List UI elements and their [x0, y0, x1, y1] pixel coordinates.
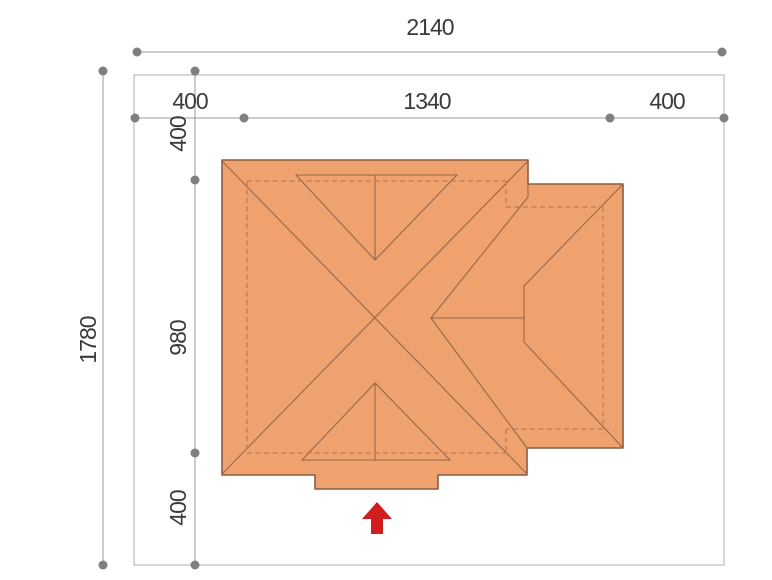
- label-right-setback: 400: [649, 88, 685, 114]
- label-total-width: 2140: [406, 14, 453, 40]
- label-building-depth: 980: [165, 320, 191, 356]
- label-bottom-setback: 400: [165, 490, 191, 526]
- label-building-width: 1340: [403, 88, 450, 114]
- label-top-setback: 400: [165, 116, 191, 152]
- site-plan-canvas: 2140 400 1340 400 1780 400 980 400: [0, 0, 772, 580]
- entrance-arrow-icon: [362, 502, 392, 534]
- roof-outline: [222, 160, 623, 489]
- site-plan: 2140 400 1340 400 1780 400 980 400: [0, 0, 772, 580]
- label-left-setback: 400: [172, 88, 208, 114]
- label-total-depth: 1780: [75, 316, 101, 363]
